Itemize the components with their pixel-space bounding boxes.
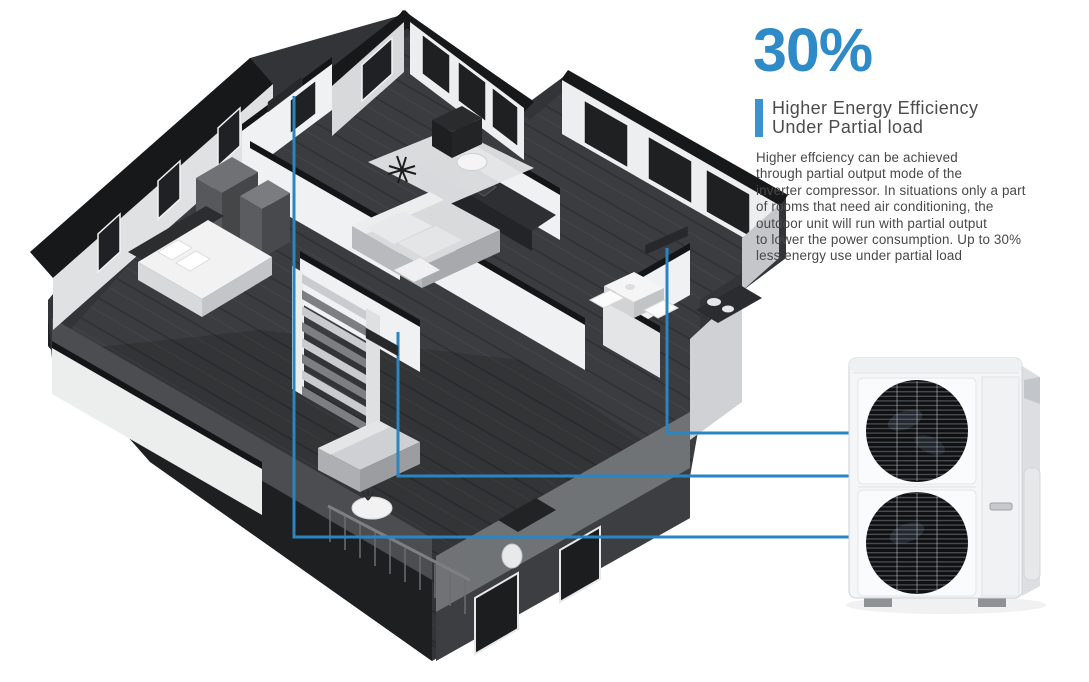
body-copy: Higher effciency can be achieved through… (756, 150, 1089, 265)
headline-text: Higher Energy Efficiency Under Partial l… (772, 99, 978, 137)
house-structure (30, 10, 788, 661)
fan-upper (858, 378, 976, 484)
headline-line-1: Higher Energy Efficiency (772, 99, 978, 118)
headline-line-2: Under Partial load (772, 118, 978, 137)
fan-lower (858, 490, 976, 596)
service-panel (982, 377, 1019, 596)
stat-percentage: 30% (753, 20, 872, 81)
infographic-canvas: 30% Higher Energy Efficiency Under Parti… (0, 0, 1089, 682)
outdoor-unit (846, 358, 1046, 614)
accent-bar (755, 99, 763, 137)
panel-handle (990, 503, 1012, 510)
headline: Higher Energy Efficiency Under Partial l… (755, 99, 978, 137)
